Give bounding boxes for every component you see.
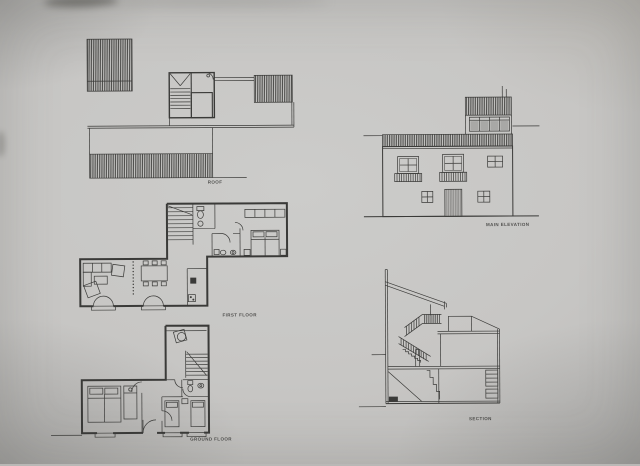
main-elevation-drawing <box>361 84 540 233</box>
roof-plan-drawing <box>69 28 320 194</box>
ground-floor-plan-label: GROUND FLOOR <box>190 437 232 442</box>
main-elevation-label: MAIN ELEVATION <box>486 223 529 228</box>
first-floor-plan-label: FIRST FLOOR <box>222 313 256 318</box>
first-floor-plan-drawing <box>75 198 311 324</box>
ground-floor-plan-drawing <box>78 322 254 451</box>
drawing-sheet: ROOF FIRST FLOOR GROUND FLOOR MAIN ELEVA… <box>0 0 640 466</box>
section-drawing <box>358 257 524 430</box>
section-label: SECTION <box>469 417 492 422</box>
photo-background: ROOF FIRST FLOOR GROUND FLOOR MAIN ELEVA… <box>0 0 640 464</box>
partition-dots <box>132 261 134 294</box>
roof-plan-label: ROOF <box>208 181 223 186</box>
